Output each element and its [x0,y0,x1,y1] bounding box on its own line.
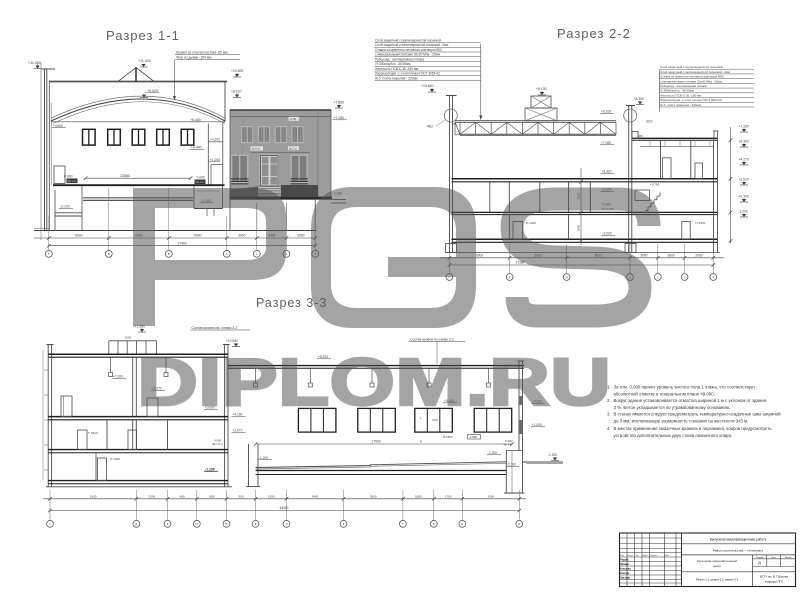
svg-text:3000: 3000 [238,234,246,238]
svg-text:+7.280: +7.280 [334,116,345,120]
svg-text:Стяжка из цементно-песчаного р: Стяжка из цементно-песчаного раствора М5… [660,75,724,79]
svg-text:+8.100: +8.100 [634,97,645,101]
svg-text:Жесткость ПСБ-С-35: Жесткость ПСБ-С-35 -150 мм [375,67,418,71]
svg-text:Б: Б [108,252,110,256]
svg-text:№док: №док [643,554,648,557]
svg-text:Н.контр.: Н.контр. [620,572,630,575]
svg-text:А: А [518,522,520,526]
svg-text:Б: Б [509,275,511,279]
svg-text:4Б2: 4Б2 [427,125,433,129]
svg-text:+9.620: +9.620 [147,89,158,93]
svg-text:В местах применения смазочных: В местах применения смазочных кровель и … [614,426,773,431]
svg-text:П-1520: П-1520 [696,221,706,225]
svg-text:П-1800: П-1800 [443,435,453,439]
svg-text:+8.100: +8.100 [601,110,611,114]
svg-text:Ур.2 эт: Ур.2 эт [252,147,261,151]
svg-text:абсолютной отметке в генеральн: абсолютной отметке в генеральном плане 4… [614,392,715,397]
svg-text:Провер.: Провер. [620,563,630,566]
svg-text:Флаг из дымки -15: Флаг из дымки -154 мм [176,56,212,60]
svg-text:+7.280: +7.280 [739,125,749,129]
svg-text:+10.640: +10.640 [421,84,433,88]
svg-text:Рубероид - изоляционная плён: Рубероид - изоляционная плёнка [660,84,707,88]
svg-text:280: 280 [638,134,643,138]
svg-text:+7.050: +7.050 [601,141,611,145]
svg-text:+2.070: +2.070 [233,429,243,433]
svg-text:-1.200: -1.200 [488,451,497,455]
svg-text:6000: 6000 [194,234,202,238]
svg-text:(В.С.Пч.): (В.С.Пч.) [212,442,223,446]
svg-text:6000: 6000 [75,234,83,238]
svg-text:+2.920: +2.920 [739,178,749,182]
svg-text:3000: 3000 [577,224,581,231]
svg-text:П-1520: П-1520 [110,457,120,461]
svg-text:Б: Б [420,440,422,444]
svg-text:3500: 3500 [370,494,377,498]
svg-text:+7.000: +7.000 [113,375,123,379]
svg-text:Лист: Лист [771,557,776,559]
svg-text:-2.100: -2.100 [507,463,516,467]
svg-text:+1.000: +1.000 [532,423,542,427]
svg-text:Консульт: Консульт [620,568,632,571]
svg-text:6000: 6000 [476,253,483,257]
svg-text:Разраб.: Разраб. [620,559,629,562]
svg-text:+10.600: +10.600 [231,69,243,73]
svg-text:Выпускная квалификационная раб: Выпускная квалификационная работа [710,538,767,542]
svg-text:3000: 3000 [668,253,675,257]
svg-text:600: 600 [180,494,185,498]
svg-text:+3.300: +3.300 [602,170,612,174]
svg-text:17980: 17980 [177,241,186,245]
svg-text:4.000: 4.000 [214,439,222,443]
svg-text:-2.100: -2.100 [60,205,70,209]
svg-text:+4.200: +4.200 [210,138,220,142]
svg-text:44300: 44300 [280,506,289,510]
svg-text:Жесткость ПСБ-С-35: Жесткость ПСБ-С-35 -150 мм [660,93,701,97]
svg-text:Слой защитный с крупнозернисто: Слой защитный с крупнозернистой посыпкой [375,38,441,42]
svg-text:Кровля из стеклопластика -65: Кровля из стеклопластика -65 мм [176,51,228,55]
svg-text:1300: 1300 [268,494,275,498]
svg-text:-1.000: -1.000 [739,210,749,214]
svg-text:Пароизоляция -1 слоя плёнки ГО: Пароизоляция -1 слоя плёнки ГОСТ 9054-02 [375,72,440,76]
svg-text:Стяжка из цементно-песчаного р: Стяжка из цементно-песчаного раствора М5… [375,48,442,52]
svg-text:с минеральными плитами 20х20 М: с минеральными плитами 20х20 Мпа - 20мм [660,79,722,83]
svg-text:Слой защитный с крупнозернисто: Слой защитный с крупнозернистой посыпкой [660,65,723,69]
svg-text:Стадия: Стадия [756,557,763,559]
svg-text:БГТУ им. В.Г.Шухова: БГТУ им. В.Г.Шухова [760,575,788,579]
svg-text:К: К [255,522,257,526]
svg-text:Е: Е [461,522,463,526]
svg-text:Рубероид - изоляционная плён: Рубероид - изоляционная плёнка [375,57,424,61]
svg-text:23580: 23580 [120,174,130,178]
svg-text:+0.300: +0.300 [739,195,749,199]
svg-text:с минеральными плитами 20х20 М: с минеральными плитами 20х20 Мпа - 20мм [375,53,440,57]
svg-text:П-1520: П-1520 [526,221,536,225]
svg-text:+8.100: +8.100 [536,87,547,91]
svg-text:За отм. 0,000 принят уровень ч: За отм. 0,000 принят уровень чистого пол… [614,385,756,390]
svg-text:Ур.ч.п.: Ур.ч.п. [196,180,205,184]
svg-text:-1.800: -1.800 [469,435,477,439]
svg-text:Разрез 1-1: Разрез 1-1 [106,28,180,43]
svg-text:4.: 4. [607,426,611,431]
svg-text:1700: 1700 [445,494,452,498]
svg-text:3300: 3300 [487,494,494,498]
svg-text:Слой защитный с мелкозернистой: Слой защитный с мелкозернистой посыпкой … [375,43,448,47]
svg-text:В стенах имеются следует преду: В стенах имеются следует предусмотреть т… [614,412,782,417]
svg-text:Культурно-оздоровительный: Культурно-оздоровительный [697,559,737,563]
svg-text:Листов: Листов [785,557,793,559]
svg-text:В: В [225,522,227,526]
svg-text:+6.300: +6.300 [739,140,749,144]
svg-text:+10.650: +10.650 [226,339,238,343]
svg-text:1500: 1500 [125,336,132,340]
svg-text:Слой защитный с мелкозернистой: Слой защитный с мелкозернистой посыпкой … [660,70,730,74]
svg-text:Ур.ч.п.: Ур.ч.п. [68,179,77,183]
svg-text:Ж.б. плита покрытия: Ж.б. плита покрытия - 220мм [660,103,701,107]
svg-text:Вокруг здания устанавливается: Вокруг здания устанавливается отмостка ш… [614,398,767,403]
svg-text:кафедра ПГС: кафедра ПГС [765,580,783,584]
svg-text:Ж.б. плита покрытия: Ж.б. плита покрытия - 220мм [375,76,418,80]
svg-text:Разрез 1-1, разрез 2-2, разрез: Разрез 1-1, разрез 2-2, разрез 3-3 [696,578,739,582]
svg-text:+4.400: +4.400 [191,146,202,150]
svg-text:Т: Т [402,522,404,526]
svg-text:до 3 мм, исключающие возможно: до 3 мм, исключающие возможность стекани… [614,419,749,424]
svg-text:Зав.каф.: Зав.каф. [620,577,631,580]
svg-text:2000: 2000 [695,253,702,257]
svg-text:-1.200: -1.200 [548,453,557,457]
svg-text:Пароизоляция -1 слоя плёнки ГО: Пароизоляция -1 слоя плёнки ГОСТ 9054-02 [660,98,722,102]
svg-text:5100: 5100 [90,494,97,498]
svg-text:500: 500 [239,494,244,498]
svg-text:3400: 3400 [312,494,319,498]
svg-text:-1.200: -1.200 [259,456,268,460]
svg-text:3 %. Бетон укладывается по утр: 3 %. Бетон укладывается по утрамбованном… [614,405,731,410]
svg-text:Лист: Лист [635,555,639,557]
svg-text:+4.500: +4.500 [53,124,63,128]
svg-text:3300: 3300 [149,494,156,498]
svg-text:+0.790: +0.790 [650,183,660,187]
svg-text:DIPLOM.RU: DIPLOM.RU [137,345,611,420]
svg-text:Кол.уч: Кол.уч [628,555,634,557]
svg-text:1800: 1800 [415,494,422,498]
svg-text:Т-1520: Т-1520 [88,431,98,435]
svg-text:+5.400: +5.400 [190,118,201,122]
svg-text:В: В [168,252,170,256]
svg-text:3000: 3000 [640,253,647,257]
svg-text:3СО: 3СО [646,120,653,124]
svg-text:Разрез 2-2: Разрез 2-2 [557,26,631,41]
svg-text:Изм: Изм [620,555,624,557]
svg-text:2000: 2000 [297,234,305,238]
svg-text:+7.860: +7.860 [334,101,345,105]
svg-text:устройство дополнительных дву: устройство дополнительных двух слоев сма… [614,433,733,438]
svg-text:0.000: 0.000 [197,176,206,180]
svg-text:В: В [566,275,568,279]
svg-text:1900: 1900 [208,494,215,498]
svg-text:Состав кровли по схеме 2-2: Состав кровли по схеме 2-2 [410,338,454,342]
svg-text:-3.000: -3.000 [603,232,612,236]
svg-text:Д: Д [135,522,137,526]
svg-text:+1.200: +1.200 [210,158,221,162]
svg-text:Район строительства – г.Ульяно: Район строительства – г.Ульяновск [713,549,764,553]
svg-text:+7.56: +7.56 [290,117,297,121]
svg-text:центр: центр [713,564,721,568]
svg-text:+11.000: +11.000 [138,59,151,63]
svg-text:+11.000: +11.000 [28,61,41,65]
svg-text:Ут.300кг/куб.м.: Ут.300кг/куб.м. -36.50мм [660,89,694,93]
svg-text:Л: Л [286,522,288,526]
svg-text:Ур.2 эт: Ур.2 эт [289,147,298,150]
svg-text:Подпись: Подпись [650,555,657,557]
svg-text:+4.270: +4.270 [739,158,749,162]
svg-text:+8.620: +8.620 [231,90,242,94]
svg-text:-1.100: -1.100 [205,468,215,472]
svg-text:17500: 17500 [371,440,380,444]
svg-text:Ур.ч.п.: Ур.ч.п. [504,443,513,447]
svg-text:Состав кровли см. схемы 2-2: Состав кровли см. схемы 2-2 [192,326,238,330]
svg-text:Ут.300кг/куб.м.: Ут.300кг/куб.м. -36.50мм [375,62,410,66]
svg-text:Б: Б [433,522,435,526]
